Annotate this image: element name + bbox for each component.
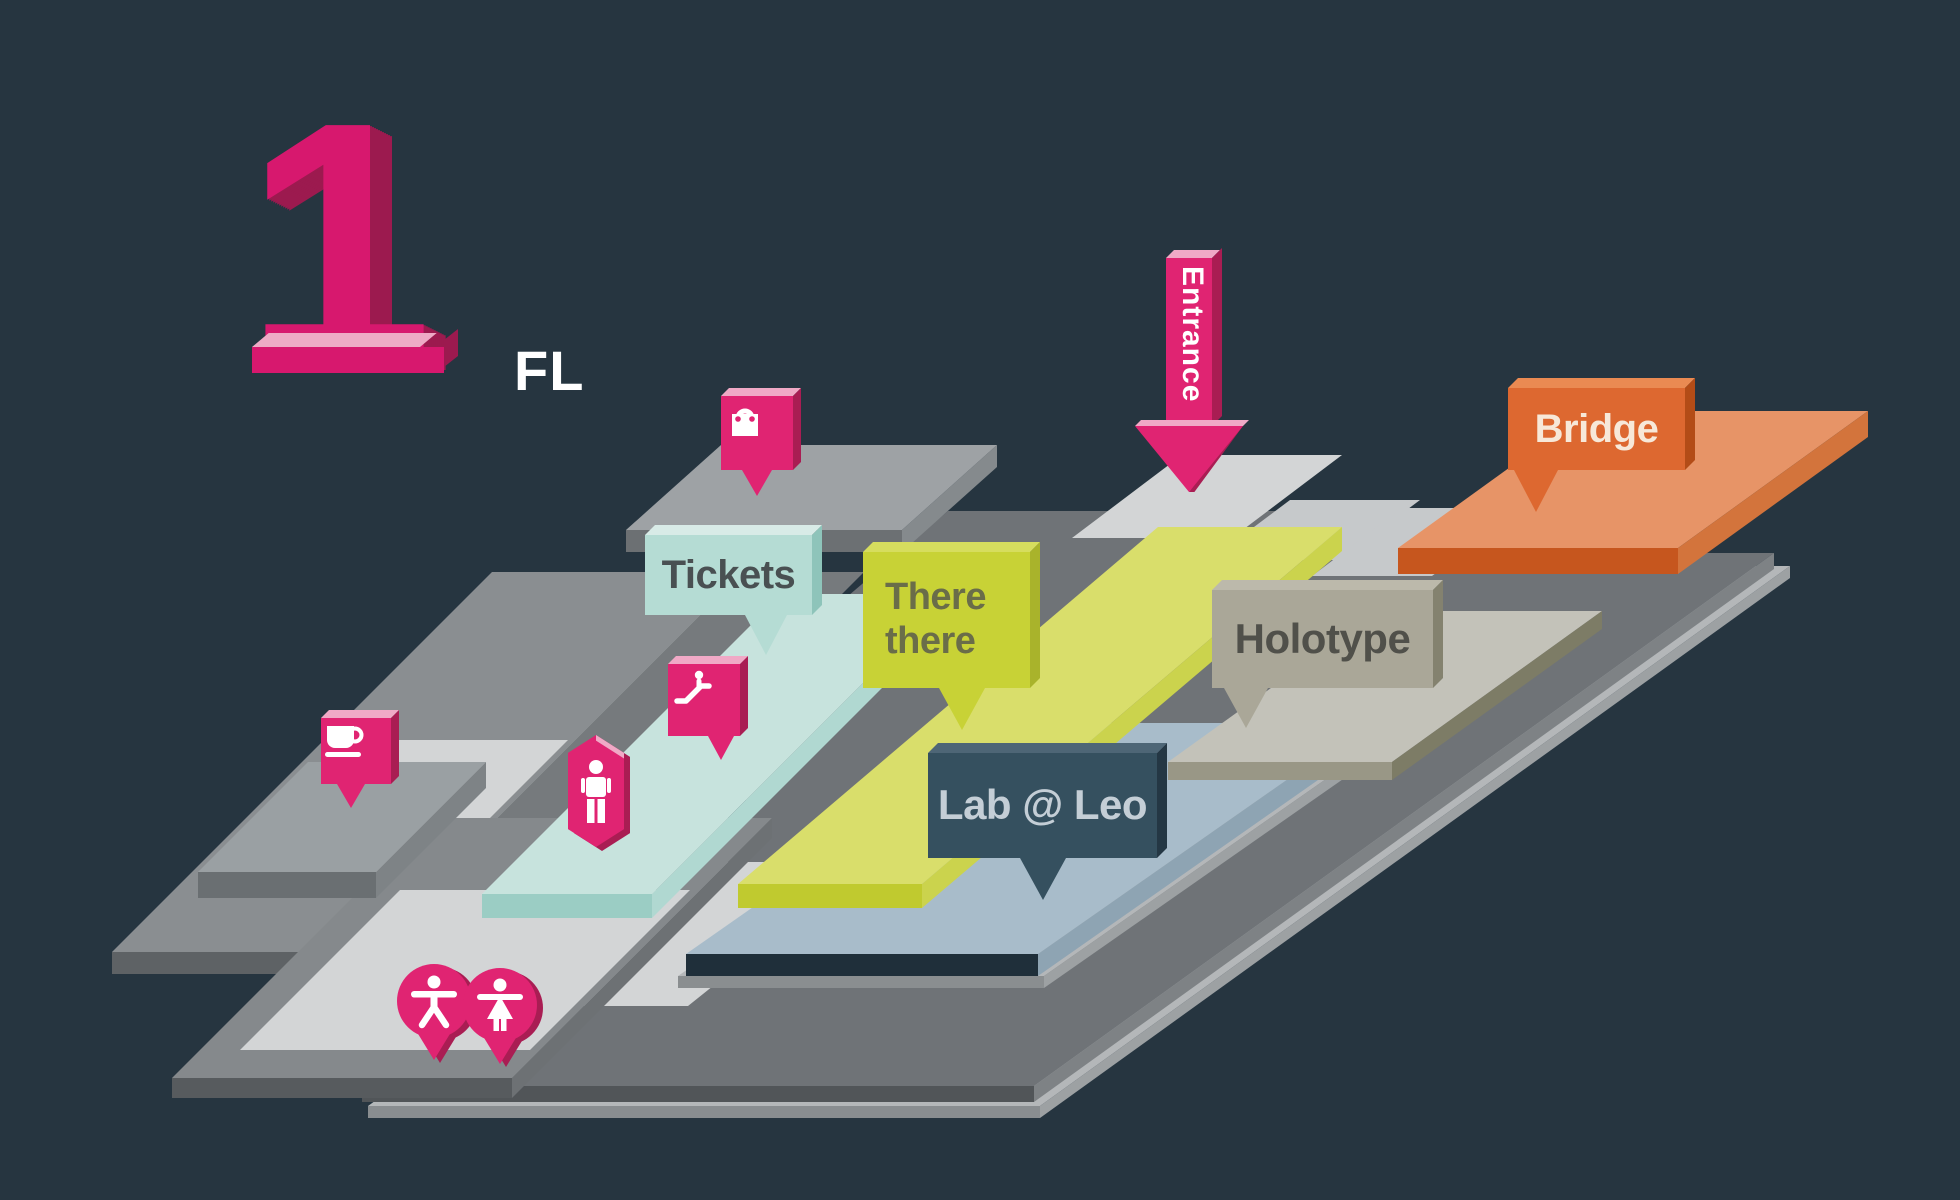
bubble-bevel xyxy=(863,542,1040,552)
area-label-tickets[interactable]: Tickets xyxy=(645,535,812,615)
cafe-marker[interactable] xyxy=(321,718,391,784)
restroom-women-marker[interactable] xyxy=(463,968,543,1072)
bubble-bevel xyxy=(1212,580,1443,590)
entrance-label: Entrance xyxy=(1175,266,1209,422)
bubble-side xyxy=(1157,743,1167,858)
information-marker[interactable] xyxy=(568,735,624,847)
marker-bevel xyxy=(321,710,399,718)
male-figure-icon xyxy=(408,973,460,1029)
entrance-arrow: Entrance xyxy=(1166,258,1212,426)
shopping-bag-icon xyxy=(721,396,769,444)
floor-suffix-label: FL xyxy=(514,338,584,403)
escalator-icon xyxy=(668,664,718,712)
area-label-text: there xyxy=(885,620,975,664)
area-label-text: There xyxy=(885,576,986,620)
bubble-side xyxy=(1433,580,1443,688)
marker-side xyxy=(793,388,801,470)
floor-number-base xyxy=(252,333,437,347)
floor-number-base-front xyxy=(252,347,444,373)
marker-bevel xyxy=(721,388,801,396)
floor-map: 1 FL Tickets There there Holotype Lab @ … xyxy=(0,0,1960,1200)
person-icon xyxy=(576,759,616,829)
bubble-bevel xyxy=(1508,378,1695,388)
bubble-side xyxy=(1030,542,1040,688)
coffee-cup-icon xyxy=(321,718,367,762)
arrow-side xyxy=(1212,248,1222,426)
escalator-marker[interactable] xyxy=(668,664,740,736)
marker-side xyxy=(391,710,399,784)
area-label-holotype[interactable]: Holotype xyxy=(1212,590,1433,688)
area-label-text: Holotype xyxy=(1235,615,1411,663)
area-label-text: Bridge xyxy=(1535,406,1659,452)
bubble-bevel xyxy=(645,525,822,535)
bubble-side xyxy=(1685,378,1695,470)
female-figure-icon xyxy=(474,977,526,1033)
area-label-there-there[interactable]: There there xyxy=(863,552,1030,688)
marker-bevel xyxy=(668,656,748,664)
area-label-lab-leo[interactable]: Lab @ Leo xyxy=(928,753,1157,858)
marker-side xyxy=(740,656,748,736)
bubble-bevel xyxy=(928,743,1167,753)
shop-marker[interactable] xyxy=(721,396,793,470)
bubble-side xyxy=(812,525,822,615)
area-label-bridge[interactable]: Bridge xyxy=(1508,388,1685,470)
area-label-text: Lab @ Leo xyxy=(938,781,1147,829)
area-label-text: Tickets xyxy=(662,552,796,598)
